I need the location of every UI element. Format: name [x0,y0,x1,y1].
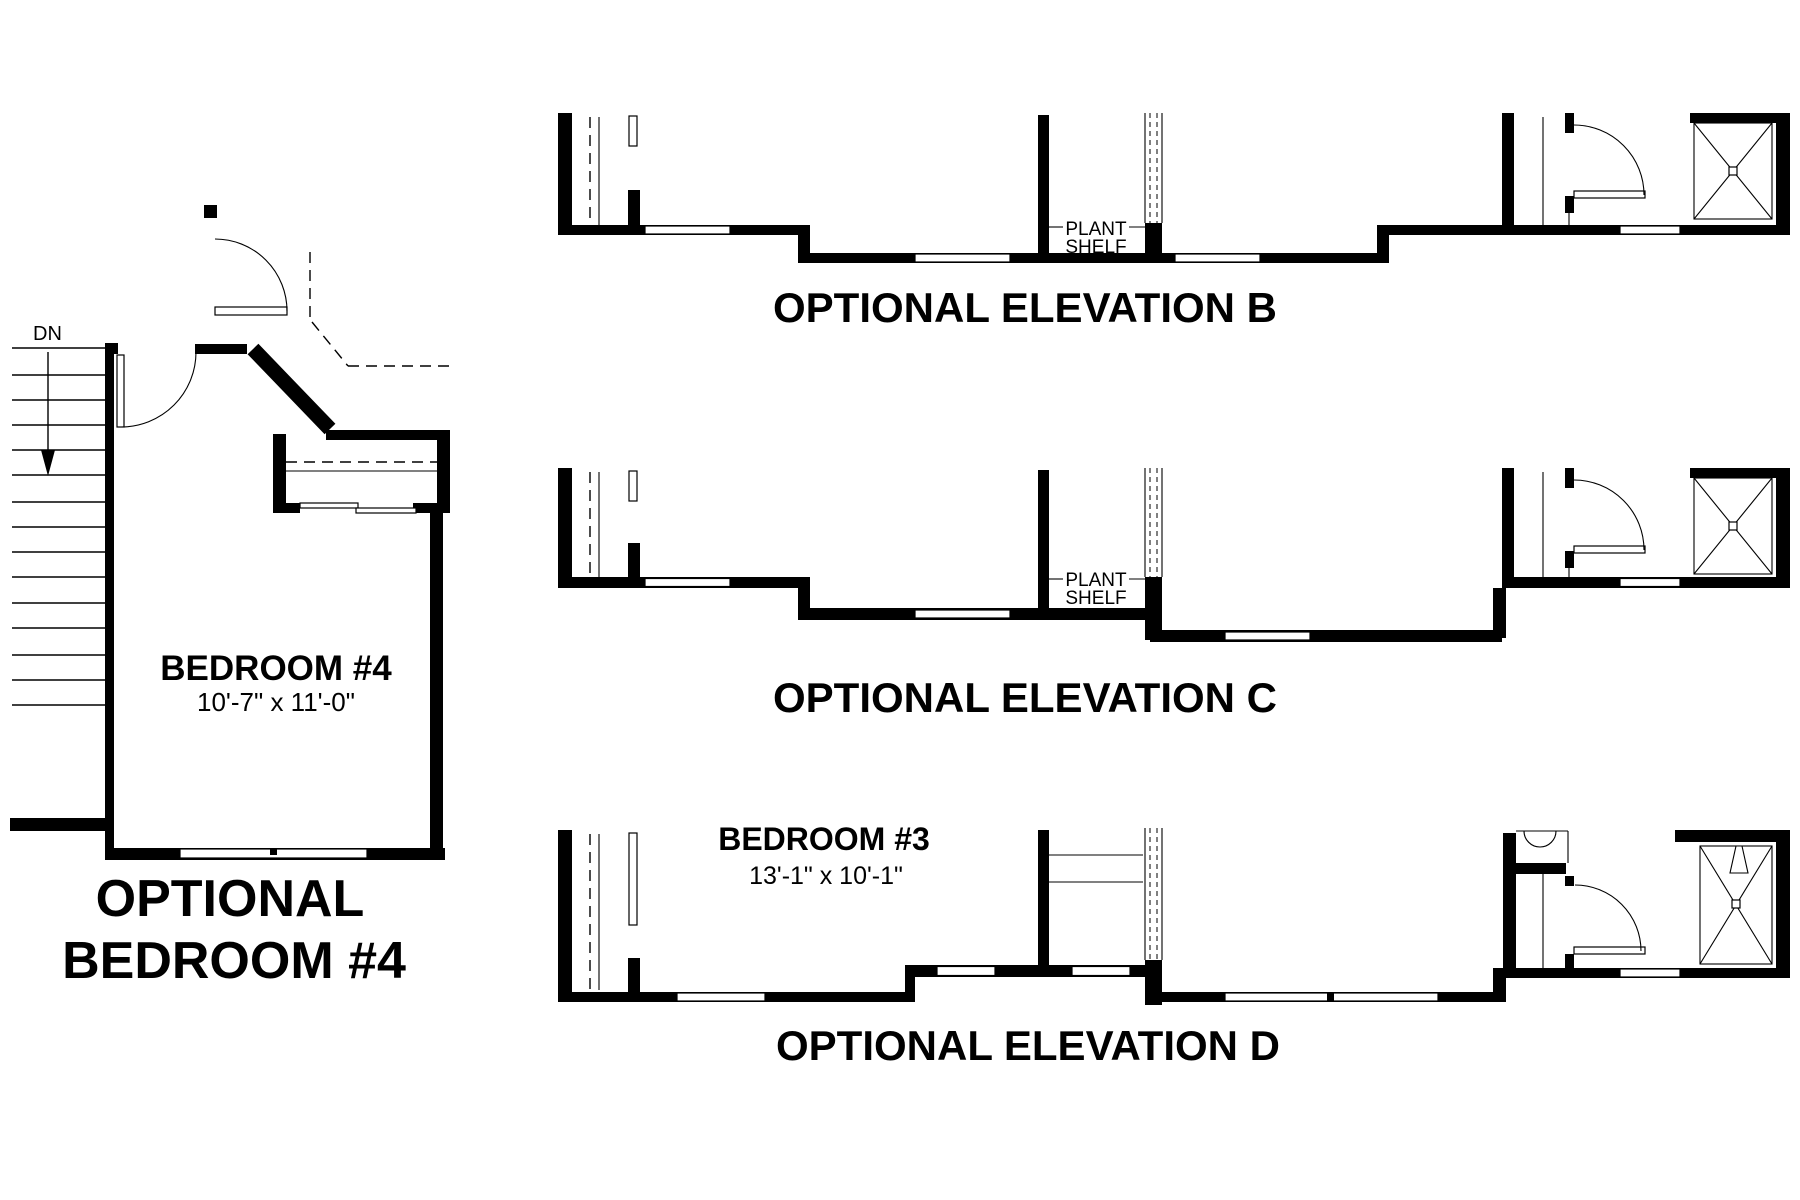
stair-direction-label: DN [33,323,62,345]
elevation-c-walls [558,470,1790,642]
toilet-nook [1516,831,1568,863]
bypass-door-panel [300,503,358,508]
bedroom4-window [180,849,367,858]
plant-shelf-callout-line2: SHELF [1065,588,1126,609]
elevation-c-left-section [558,468,640,588]
elevation-d-shelves [1049,855,1143,882]
door-jamb [629,116,637,146]
double-window [1225,992,1438,1002]
elevation-c-bath-section [1502,468,1790,588]
bedroom3-room-dimensions: 13'-1" x 10'-1" [749,862,903,890]
elevation-b: PLANT SHELF OPTIONAL ELEVATION B [558,113,1790,331]
window [1175,254,1260,262]
door-swing [1574,885,1645,954]
shower-head-symbol [1730,846,1748,873]
door-jamb [629,833,637,925]
window [677,993,765,1001]
bedroom4-room-label: BEDROOM #4 [160,649,392,688]
elevation-d-title: OPTIONAL ELEVATION D [776,1022,1280,1069]
shower [1675,830,1790,978]
window [645,579,730,587]
window [915,254,1010,262]
bypass-door-panel [356,508,416,513]
elevation-d-bath-section [1503,830,1790,978]
window [1072,967,1130,976]
elevation-b-title: OPTIONAL ELEVATION B [773,284,1277,331]
floor-plan-caption-line2: BEDROOM #4 [62,932,406,990]
elevation-b-bath-section [1502,113,1790,235]
elevation-c: PLANT SHELF OPTIONAL ELEVATION C [558,468,1790,721]
window [1620,579,1680,587]
elevation-b-left-section [558,113,640,235]
shower [1690,468,1790,588]
elevation-b-walls [558,115,1790,263]
window [645,226,730,234]
window [1225,632,1310,640]
elevation-d: BEDROOM #3 13'-1" x 10'-1" OPTIONAL ELEV… [558,821,1790,1069]
elevation-d-left-section [558,830,640,1002]
plan-drawing-svg: DN [0,0,1800,1200]
stairs: DN [12,323,105,705]
elevation-c-title: OPTIONAL ELEVATION C [773,674,1277,721]
bedroom4-floor-plan: DN [10,205,455,990]
elevation-d-chase [1145,828,1162,1005]
door-jamb [629,471,637,501]
closet [273,462,450,513]
elevation-b-plant-shelf: PLANT SHELF [1049,113,1162,263]
entry-door [117,352,196,427]
window [1620,969,1680,977]
window [937,967,995,976]
floor-plan-sheet: DN [0,0,1800,1200]
plant-shelf-callout-line2: SHELF [1065,237,1126,258]
door-swing [1574,480,1645,553]
bedroom4-walls [10,343,450,860]
door-swing [1574,125,1645,198]
hall-door [204,205,455,366]
window [1620,226,1680,234]
stair-down-arrow-icon [41,352,55,476]
window [915,610,1010,618]
bedroom3-room-label: BEDROOM #3 [718,821,930,857]
bedroom4-room-dimensions: 10'-7" x 11'-0" [197,687,355,717]
shower [1690,113,1790,235]
floor-plan-caption-line1: OPTIONAL [96,870,365,928]
